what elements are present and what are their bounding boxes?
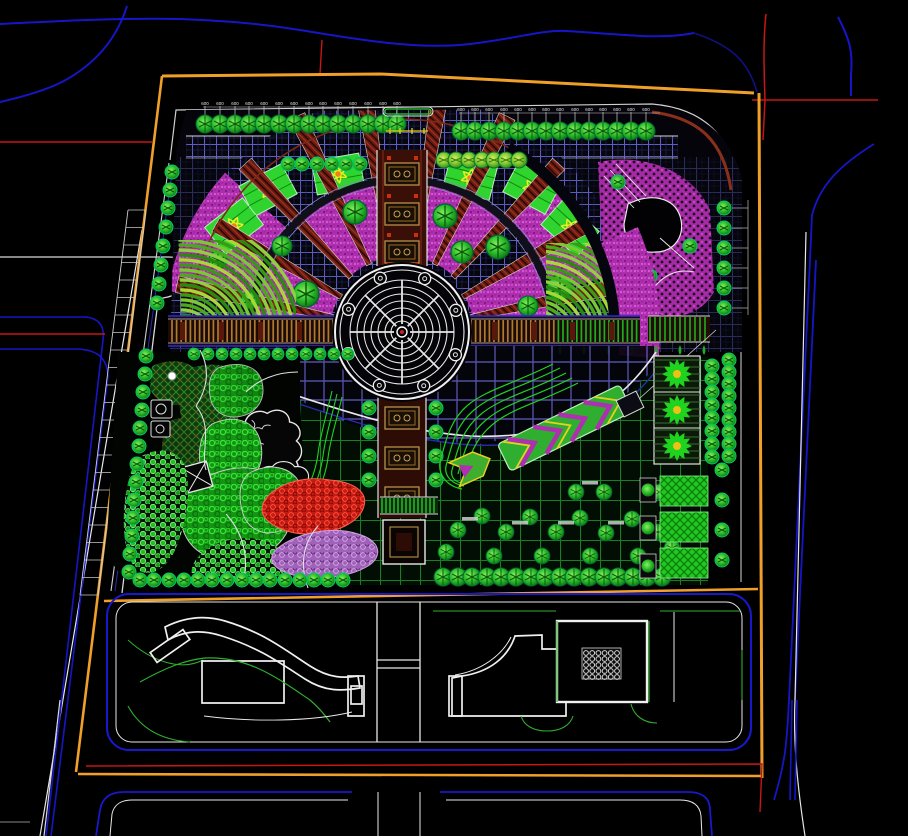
svg-text:600: 600 [642, 107, 650, 112]
svg-text:600: 600 [627, 107, 635, 112]
svg-text:600: 600 [556, 107, 564, 112]
svg-text:600: 600 [379, 101, 387, 106]
svg-text:600: 600 [613, 107, 621, 112]
svg-text:600: 600 [571, 107, 579, 112]
svg-text:600: 600 [231, 101, 239, 106]
svg-text:600: 600 [457, 107, 465, 112]
svg-text:600: 600 [216, 101, 224, 106]
svg-text:600: 600 [275, 101, 283, 106]
svg-text:600: 600 [585, 107, 593, 112]
svg-text:600: 600 [514, 107, 522, 112]
svg-text:600: 600 [349, 101, 357, 106]
svg-text:600: 600 [471, 107, 479, 112]
svg-text:600: 600 [393, 101, 401, 106]
svg-text:600: 600 [599, 107, 607, 112]
svg-text:600: 600 [364, 101, 372, 106]
svg-text:600: 600 [245, 101, 253, 106]
svg-text:600: 600 [528, 107, 536, 112]
svg-text:600: 600 [334, 101, 342, 106]
svg-text:600: 600 [305, 101, 313, 106]
svg-text:600: 600 [260, 101, 268, 106]
svg-text:600: 600 [500, 107, 508, 112]
svg-text:600: 600 [485, 107, 493, 112]
svg-text:600: 600 [290, 101, 298, 106]
svg-text:600: 600 [201, 101, 209, 106]
svg-text:600: 600 [319, 101, 327, 106]
svg-text:600: 600 [542, 107, 550, 112]
